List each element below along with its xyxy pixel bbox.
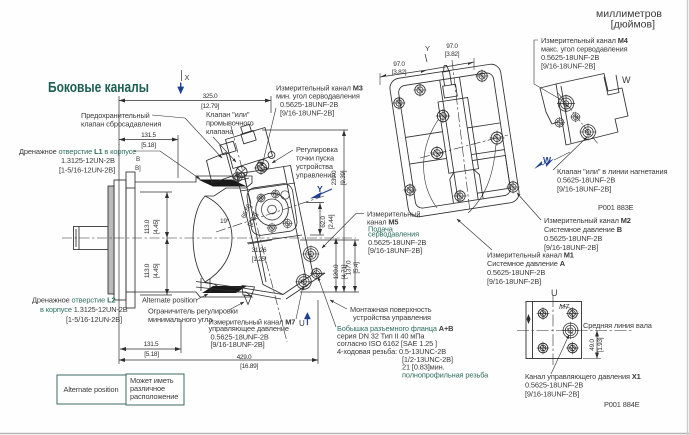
svg-text:[4.45]: [4.45] bbox=[153, 263, 160, 278]
svg-text:[9/16-18UNF-2B]: [9/16-18UNF-2B] bbox=[487, 277, 541, 286]
svg-text:[5.18]: [5.18] bbox=[144, 351, 159, 358]
svg-text:[9/16-18UNF-2B]: [9/16-18UNF-2B] bbox=[280, 109, 334, 118]
svg-text:U: U bbox=[551, 288, 558, 298]
svg-text:P001 884E: P001 884E bbox=[604, 400, 640, 409]
svg-text:в корпусе 1.3125-12UN-2B: в корпусе 1.3125-12UN-2B bbox=[40, 305, 128, 314]
svg-text:B: B bbox=[136, 156, 140, 163]
svg-text:[9.39]: [9.39] bbox=[340, 170, 347, 185]
svg-text:[9/16-18UNF-2B]: [9/16-18UNF-2B] bbox=[541, 62, 595, 71]
svg-text:0.5625-18UNF-2B: 0.5625-18UNF-2B bbox=[525, 381, 583, 390]
svg-text:62.0: 62.0 bbox=[320, 216, 327, 228]
svg-text:[12.79]: [12.79] bbox=[201, 103, 219, 110]
svg-text:0.5625-18UNF-2B: 0.5625-18UNF-2B bbox=[557, 176, 615, 185]
svg-text:0.5625-18UNF-2B: 0.5625-18UNF-2B bbox=[544, 234, 602, 243]
svg-text:429.0: 429.0 bbox=[237, 354, 252, 361]
svg-text:управления: управления bbox=[296, 171, 335, 180]
svg-text:31.26: 31.26 bbox=[252, 247, 267, 254]
svg-text:Системное давление A: Системное давление A bbox=[487, 259, 566, 268]
svg-text:B]: B] bbox=[135, 165, 141, 172]
svg-text:устройства управления: устройства управления bbox=[353, 313, 431, 322]
svg-text:113.0: 113.0 bbox=[144, 219, 151, 234]
svg-text:Y: Y bbox=[425, 44, 430, 53]
svg-text:[5.4]: [5.4] bbox=[353, 262, 360, 274]
svg-text:[1.93]: [1.93] bbox=[597, 337, 604, 352]
svg-text:Дренажное отверстие L2: Дренажное отверстие L2 bbox=[32, 296, 116, 305]
svg-text:137.0: 137.0 bbox=[346, 260, 353, 275]
svg-text:Измерительный канал M2: Измерительный канал M2 bbox=[544, 216, 631, 225]
svg-text:P001 883E: P001 883E bbox=[598, 203, 634, 212]
svg-text:клапана: клапана bbox=[206, 127, 234, 136]
svg-text:1.3125-12UN-2B: 1.3125-12UN-2B bbox=[61, 156, 115, 165]
svg-text:Боковые каналы: Боковые каналы bbox=[48, 80, 149, 96]
svg-text:131.5: 131.5 bbox=[141, 132, 156, 139]
svg-text:113.0: 113.0 bbox=[144, 263, 151, 278]
svg-text:[9/16-18UNF-2B]: [9/16-18UNF-2B] bbox=[525, 390, 579, 399]
svg-text:19°: 19° bbox=[220, 217, 230, 225]
svg-text:W: W bbox=[622, 75, 631, 85]
svg-text:[5.18]: [5.18] bbox=[141, 142, 156, 149]
svg-text:Системное давление B: Системное давление B bbox=[544, 225, 622, 234]
svg-text:клапан сбросадавления: клапан сбросадавления bbox=[81, 120, 161, 129]
svg-text:[1.25]: [1.25] bbox=[252, 256, 267, 263]
svg-text:120.0: 120.0 bbox=[333, 264, 340, 279]
svg-text:U: U bbox=[299, 319, 305, 328]
svg-text:[9/16-18UNF-2B]: [9/16-18UNF-2B] bbox=[544, 243, 598, 252]
svg-text:[16.89]: [16.89] bbox=[240, 363, 258, 370]
svg-text:минимального угла: минимального угла bbox=[148, 315, 213, 324]
svg-text:97.0: 97.0 bbox=[446, 43, 458, 50]
svg-text:[дюймов]: [дюймов] bbox=[611, 19, 655, 31]
svg-text:расположение: расположение bbox=[130, 392, 178, 401]
svg-text:Alternate position: Alternate position bbox=[64, 385, 119, 394]
svg-text:Alternate position: Alternate position bbox=[142, 296, 197, 305]
svg-text:Y: Y bbox=[317, 184, 323, 194]
svg-text:0.5625-18UNF-2B: 0.5625-18UNF-2B bbox=[487, 268, 545, 277]
svg-text:[2.44]: [2.44] bbox=[328, 214, 335, 229]
svg-text:[9/16-18UNF-2B]: [9/16-18UNF-2B] bbox=[211, 340, 265, 349]
svg-text:X: X bbox=[185, 73, 190, 82]
svg-text:Средняя линия вала: Средняя линия вала bbox=[583, 321, 653, 330]
svg-text:[1-5/16-12UN-2B]: [1-5/16-12UN-2B] bbox=[59, 166, 115, 175]
svg-text:[3.82]: [3.82] bbox=[445, 51, 460, 58]
svg-text:49.0: 49.0 bbox=[589, 339, 596, 351]
svg-text:полнопрофильная резьба: полнопрофильная резьба bbox=[402, 371, 489, 380]
svg-text:131.5: 131.5 bbox=[144, 341, 159, 348]
svg-text:325.0: 325.0 bbox=[203, 93, 218, 100]
svg-text:97.0: 97.0 bbox=[393, 61, 405, 68]
svg-text:Дренажное отверстие L1 в корпу: Дренажное отверстие L1 в корпусе bbox=[19, 147, 136, 156]
svg-text:[9/16-18UNF-2B]: [9/16-18UNF-2B] bbox=[557, 185, 611, 194]
svg-text:[4.45]: [4.45] bbox=[153, 219, 160, 234]
svg-text:[1-5/16-12UN-2B]: [1-5/16-12UN-2B] bbox=[66, 315, 122, 324]
svg-text:[9/16-18UNF-2B]: [9/16-18UNF-2B] bbox=[368, 246, 422, 255]
